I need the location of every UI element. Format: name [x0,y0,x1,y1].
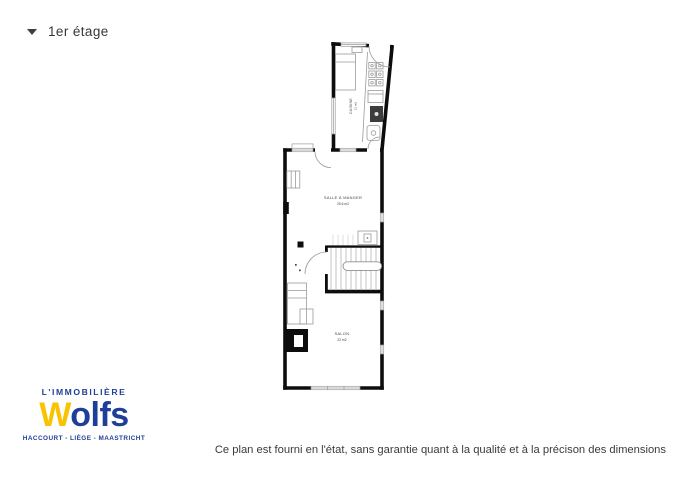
sink [367,126,380,141]
caret-down-icon[interactable] [27,29,37,35]
upper-flight-treads [333,235,353,246]
column-post [298,242,304,248]
floor-label: 1er étage [48,24,109,39]
stair-handrail [343,262,382,271]
salon-furniture [288,283,314,324]
door-openings [315,46,390,150]
solid-features [283,202,308,352]
room-area-salle-a-manger: 25.6 m2 [337,202,349,206]
logo-cities: HACCOURT - LIÈGE - MAASTRICHT [22,436,146,442]
room-area-cuisine: 11 m2 [354,102,358,110]
room-area-salon: 22 m2 [337,338,346,342]
radiator [287,171,300,188]
room-labels: CUISINE 11 m2 SALLE À MANGER 25.6 m2 SAL… [324,98,362,342]
staircase [305,235,383,293]
agency-logo: L'IMMOBILIÈRE Wolfs HACCOURT - LIÈGE - M… [22,388,146,442]
room-label-cuisine: CUISINE [349,98,353,114]
stair-door-arc [305,252,327,274]
sofa [288,283,307,324]
logo-brand-name: Wolfs [22,398,146,432]
logo-brand-rest: olfs [70,396,128,434]
floorplan-drawing: CUISINE 11 m2 SALLE À MANGER 25.6 m2 SAL… [270,38,415,398]
floorplan: CUISINE 11 m2 SALLE À MANGER 25.6 m2 SAL… [270,38,415,398]
logo-brand-initial: W [39,396,70,434]
floorplan-page: 1er étage [0,0,678,480]
disclaimer-text: Ce plan est fourni en l'état, sans garan… [215,444,666,456]
floor-selector-dropdown[interactable]: 1er étage [27,24,109,39]
dining-furniture [287,171,377,245]
room-label-salle-a-manger: SALLE À MANGER [324,195,362,200]
room-label-salon: SALON [335,331,350,336]
